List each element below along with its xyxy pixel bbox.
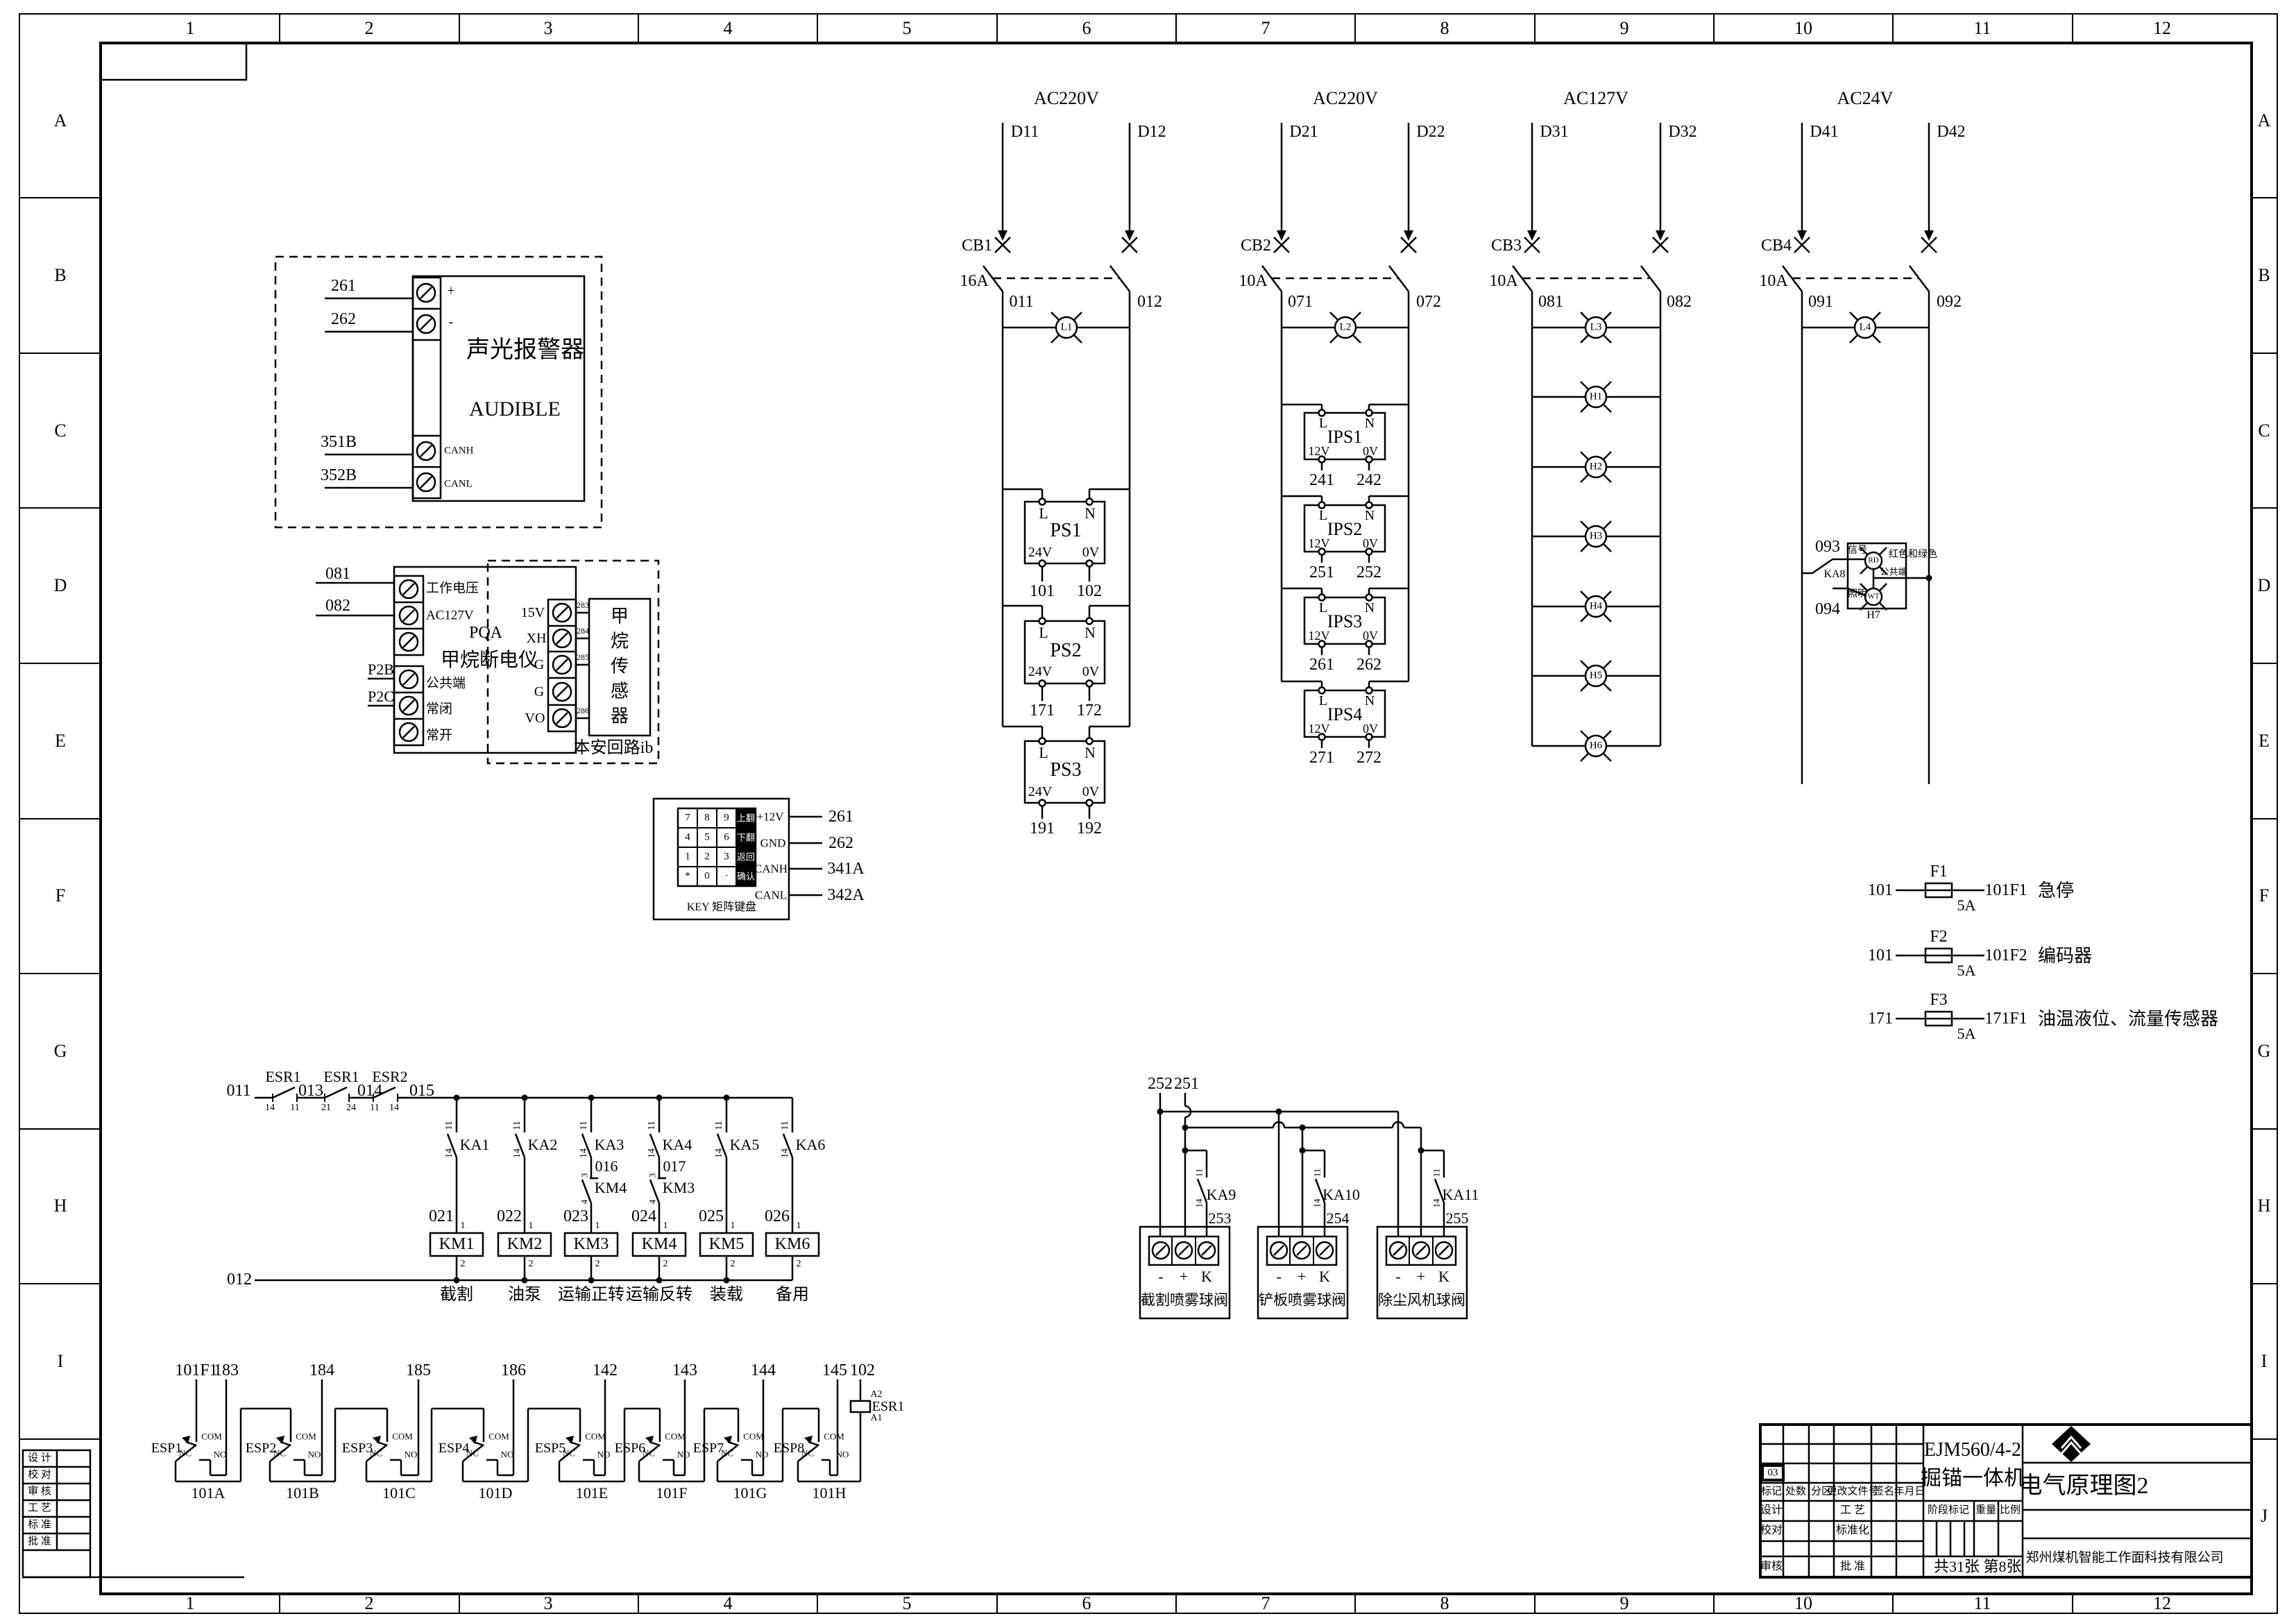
ka11-t2: 14 bbox=[1432, 1199, 1441, 1208]
wire-261c: 261 bbox=[1309, 656, 1334, 673]
km5-p2: 2 bbox=[731, 1259, 735, 1269]
wire-283: 283 bbox=[577, 601, 589, 609]
wire-262b: 262 bbox=[828, 835, 853, 851]
grid-col: 7 bbox=[1261, 1595, 1270, 1613]
esp7-no: NO bbox=[756, 1450, 769, 1459]
esp8-nc: NC bbox=[801, 1449, 814, 1458]
feed4-title: AC24V bbox=[1837, 90, 1894, 108]
esr1-a1: A1 bbox=[870, 1413, 882, 1423]
key-8[interactable]: 8 bbox=[704, 813, 710, 824]
lamp-H4: H4 bbox=[1590, 602, 1602, 612]
wire-253: 253 bbox=[1209, 1211, 1232, 1226]
contact-esr1a-t2: 11 bbox=[290, 1103, 299, 1113]
fuse2-desc: 编码器 bbox=[2038, 947, 2092, 965]
lamp-H1: H1 bbox=[1590, 392, 1602, 402]
contact-esr1b: ESR1 bbox=[323, 1069, 359, 1085]
wire-351B: 351B bbox=[321, 434, 357, 450]
grid-row: C bbox=[54, 422, 66, 440]
grid-col: 6 bbox=[1082, 19, 1091, 37]
v2-pos: + bbox=[1298, 1269, 1306, 1284]
coil-KM6: KM6 bbox=[775, 1236, 810, 1252]
switch-ESP8: ESP8 bbox=[774, 1441, 804, 1455]
key-pagedown[interactable]: 下翻 bbox=[737, 833, 755, 842]
audible-title-cn: 声光报警器 bbox=[466, 339, 584, 362]
grid-col: 3 bbox=[544, 1595, 553, 1613]
ka3-t2: 14 bbox=[579, 1148, 589, 1158]
node-024: 024 bbox=[631, 1208, 656, 1225]
esp3-no: NO bbox=[405, 1450, 418, 1459]
wire-172: 172 bbox=[1077, 702, 1102, 719]
ps1-24v: 24V bbox=[1028, 545, 1052, 559]
product-model: EJM560/4-2 bbox=[1924, 1441, 2021, 1460]
pin-15v: 15V bbox=[521, 606, 545, 620]
ips3-N: N bbox=[1365, 601, 1375, 615]
ps2-L: L bbox=[1039, 625, 1048, 640]
wire-144: 144 bbox=[751, 1362, 776, 1379]
grid-col: 10 bbox=[1794, 1595, 1812, 1613]
ka4-t2: 14 bbox=[647, 1148, 657, 1158]
wire-171: 171 bbox=[1030, 702, 1055, 719]
wire-D32: D32 bbox=[1668, 124, 1697, 140]
grid-col: 2 bbox=[365, 1595, 374, 1613]
ka1-t2: 14 bbox=[445, 1148, 454, 1158]
grid-col: 1 bbox=[186, 1595, 195, 1613]
km4-p1: 1 bbox=[663, 1221, 668, 1231]
contact-KA2: KA2 bbox=[528, 1137, 558, 1153]
grid-col: 2 bbox=[365, 19, 374, 37]
v2-neg: - bbox=[1276, 1269, 1281, 1284]
key-5[interactable]: 5 bbox=[704, 833, 710, 843]
ips1-12v: 12V bbox=[1309, 445, 1330, 457]
wire-192: 192 bbox=[1077, 820, 1102, 837]
pin-12v: +12V bbox=[757, 811, 784, 823]
wire-251b: 251 bbox=[1174, 1076, 1199, 1092]
breaker-CB4-rating: 10A bbox=[1759, 273, 1787, 289]
km4-i2: 4 bbox=[580, 1200, 589, 1205]
grid-row: A bbox=[2258, 112, 2271, 130]
grid-row: D bbox=[54, 577, 67, 595]
pin-vo: VO bbox=[525, 711, 545, 725]
ips1-name: IPS1 bbox=[1327, 428, 1363, 446]
contact-KA4: KA4 bbox=[663, 1137, 692, 1153]
node-017: 017 bbox=[663, 1159, 686, 1174]
grid-col: 12 bbox=[2153, 1595, 2171, 1613]
node-092: 092 bbox=[1937, 294, 1962, 310]
fuse2-rating: 5A bbox=[1957, 963, 1976, 978]
wire-251: 251 bbox=[1309, 564, 1334, 581]
ips4-L: L bbox=[1319, 694, 1327, 708]
contact-esr1a: ESR1 bbox=[265, 1069, 300, 1085]
fuse3-out: 171F1 bbox=[1984, 1010, 2027, 1027]
esp4-com: COM bbox=[488, 1432, 509, 1441]
ka3-t1: 11 bbox=[579, 1121, 589, 1130]
lamp-L2: L2 bbox=[1340, 323, 1352, 333]
tb-h-count: 处数 bbox=[1785, 1487, 1806, 1497]
terminal-canh: CANH bbox=[444, 446, 474, 457]
v1-k: K bbox=[1201, 1269, 1212, 1284]
wire-102: 102 bbox=[1077, 583, 1102, 600]
ka2-t1: 11 bbox=[513, 1121, 522, 1130]
pin-gnd: GND bbox=[760, 838, 786, 849]
bus-101G: 101G bbox=[733, 1486, 767, 1501]
h7-colors: 红色和绿色 bbox=[1889, 550, 1937, 560]
key-confirm[interactable]: 确认 bbox=[737, 872, 755, 881]
valve1-name: 截割喷雾球阀 bbox=[1141, 1293, 1228, 1308]
node-021: 021 bbox=[429, 1208, 454, 1225]
grid-col: 5 bbox=[903, 19, 912, 37]
terminal-plus: + bbox=[447, 284, 454, 298]
lamp-WT: WT bbox=[1867, 593, 1879, 601]
grid-col: 6 bbox=[1082, 1595, 1091, 1613]
ps2-name: PS2 bbox=[1050, 641, 1081, 661]
ps1-L: L bbox=[1039, 506, 1048, 521]
esp6-nc: NC bbox=[643, 1449, 655, 1458]
pin-xh: XH bbox=[527, 631, 547, 645]
wire-D11: D11 bbox=[1011, 124, 1039, 140]
node-011b: 011 bbox=[226, 1082, 250, 1099]
company-name: 郑州煤机智能工作面科技有限公司 bbox=[2025, 1552, 2223, 1565]
tb-process: 工 艺 bbox=[1840, 1505, 1865, 1516]
contact-KA11: KA11 bbox=[1443, 1187, 1479, 1203]
wire-272: 272 bbox=[1357, 749, 1381, 766]
grid-row: F bbox=[56, 887, 65, 905]
device-pqa: PQA bbox=[469, 624, 502, 641]
key-7[interactable]: 7 bbox=[685, 813, 690, 824]
breaker-CB3-rating: 10A bbox=[1489, 273, 1517, 289]
contact-esr2-t1: 11 bbox=[370, 1103, 379, 1113]
fuse3-name: F3 bbox=[1930, 992, 1947, 1008]
grid-col: 5 bbox=[903, 1595, 912, 1613]
sig-check: 校 对 bbox=[28, 1470, 51, 1481]
fuse3-rating: 5A bbox=[1957, 1026, 1976, 1042]
grid-row: C bbox=[2258, 422, 2270, 440]
grid-row: I bbox=[58, 1352, 64, 1370]
grid-row: G bbox=[2258, 1042, 2271, 1060]
wire-185: 185 bbox=[406, 1362, 431, 1379]
wire-342A: 342A bbox=[827, 887, 864, 903]
node-026: 026 bbox=[765, 1208, 790, 1225]
wire-271: 271 bbox=[1309, 749, 1334, 766]
contact-KA9: KA9 bbox=[1207, 1187, 1236, 1203]
fuse1-in: 101 bbox=[1868, 882, 1893, 899]
grid-col: 7 bbox=[1261, 19, 1270, 37]
esp4-nc: NC bbox=[466, 1449, 479, 1458]
ka10-t1: 11 bbox=[1313, 1169, 1322, 1178]
ips2-12v: 12V bbox=[1309, 537, 1330, 550]
wire-145: 145 bbox=[822, 1362, 847, 1379]
km3-p1: 1 bbox=[595, 1221, 600, 1231]
tb-h-sign: 签名 bbox=[1873, 1487, 1894, 1497]
wire-143: 143 bbox=[672, 1362, 697, 1379]
bus-101D: 101D bbox=[479, 1486, 513, 1501]
ka6-t1: 11 bbox=[781, 1121, 790, 1130]
tb-sheet: 第8张 bbox=[1983, 1559, 2021, 1574]
ka2-t2: 14 bbox=[513, 1148, 522, 1158]
lamp-RD: RD bbox=[1868, 557, 1878, 565]
km1-p2: 2 bbox=[461, 1259, 466, 1269]
node-091: 091 bbox=[1808, 294, 1833, 310]
coil-KM4: KM4 bbox=[642, 1236, 677, 1252]
v3-k: K bbox=[1438, 1269, 1449, 1284]
methane-sensor: 甲烷传感器 bbox=[609, 604, 631, 728]
fuse2-in: 101 bbox=[1868, 947, 1893, 964]
ladder-lines bbox=[255, 1087, 819, 1284]
ps3-0v: 0V bbox=[1082, 785, 1099, 799]
key-6[interactable]: 6 bbox=[724, 833, 729, 843]
tb-weight: 重量 bbox=[1975, 1506, 1996, 1516]
wire-D22: D22 bbox=[1416, 124, 1445, 140]
key-star[interactable]: * bbox=[685, 872, 690, 882]
coil-ESR1: ESR1 bbox=[872, 1400, 905, 1413]
esp5-com: COM bbox=[585, 1432, 606, 1441]
wire-D31: D31 bbox=[1540, 124, 1568, 140]
rev-marker: 03 bbox=[1768, 1468, 1778, 1479]
km1-p1: 1 bbox=[461, 1221, 466, 1231]
wire-D42: D42 bbox=[1937, 124, 1965, 140]
node-025: 025 bbox=[699, 1208, 724, 1225]
ips4-N: N bbox=[1365, 694, 1375, 708]
ps2-0v: 0V bbox=[1082, 665, 1099, 679]
grid-row: E bbox=[2259, 732, 2270, 750]
wire-D21: D21 bbox=[1289, 124, 1318, 140]
key-0[interactable]: 0 bbox=[704, 872, 710, 882]
interlock-KM3: KM3 bbox=[663, 1180, 695, 1196]
node-011: 011 bbox=[1009, 294, 1033, 310]
valve3-name: 除尘风机球阀 bbox=[1378, 1293, 1465, 1308]
breaker-CB2-rating: 10A bbox=[1239, 273, 1267, 289]
wire-255: 255 bbox=[1446, 1211, 1469, 1226]
terminal-voltage: 工作电压 bbox=[426, 582, 479, 595]
coil-KM3: KM3 bbox=[574, 1236, 609, 1252]
bus-101E: 101E bbox=[576, 1486, 608, 1501]
contact-KA3: KA3 bbox=[595, 1137, 624, 1153]
esp2-com: COM bbox=[296, 1432, 316, 1441]
node-094: 094 bbox=[1815, 601, 1840, 618]
esr1-a2: A2 bbox=[870, 1390, 882, 1400]
v1-pos: + bbox=[1180, 1269, 1188, 1284]
key-9[interactable]: 9 bbox=[724, 813, 729, 824]
pin-g2: G bbox=[534, 685, 544, 699]
drawing-title: 电气原理图2 bbox=[2019, 1475, 2149, 1498]
ips2-N: N bbox=[1365, 509, 1375, 522]
wire-261: 261 bbox=[331, 278, 356, 294]
fuse2-out: 101F2 bbox=[1984, 947, 2027, 964]
h7-signal: 信号 bbox=[1848, 546, 1867, 556]
contact-esr1a-t1: 14 bbox=[265, 1103, 275, 1113]
bus-101H: 101H bbox=[813, 1486, 847, 1501]
wire-252b: 252 bbox=[1148, 1076, 1173, 1092]
esp2-no: NO bbox=[308, 1450, 321, 1459]
esp2-nc: NC bbox=[273, 1449, 286, 1458]
tb-audit: 审核 bbox=[1760, 1561, 1783, 1572]
key-pageup[interactable]: 上翻 bbox=[737, 814, 755, 823]
feed4-lines bbox=[1783, 123, 1937, 784]
wire-101F1: 101F1 bbox=[175, 1362, 217, 1379]
coil-KM5: KM5 bbox=[709, 1236, 745, 1252]
wire-286: 286 bbox=[577, 706, 589, 715]
ips1-N: N bbox=[1365, 416, 1375, 430]
km3-i1: 3 bbox=[648, 1173, 657, 1178]
switch-ESP2: ESP2 bbox=[246, 1441, 276, 1455]
wire-262: 262 bbox=[331, 311, 356, 328]
km3-p2: 2 bbox=[595, 1259, 600, 1269]
node-016: 016 bbox=[595, 1159, 618, 1174]
contact-KA6: KA6 bbox=[796, 1137, 826, 1153]
wire-p2b: P2B bbox=[368, 662, 394, 677]
wire-183: 183 bbox=[214, 1362, 239, 1379]
ka10-t2: 14 bbox=[1313, 1199, 1322, 1208]
breaker-CB1: CB1 bbox=[962, 237, 992, 254]
switch-ESP1: ESP1 bbox=[151, 1441, 182, 1455]
esp3-com: COM bbox=[392, 1432, 413, 1441]
grid-row: H bbox=[2258, 1197, 2271, 1215]
contact-esr1b-t1: 21 bbox=[321, 1103, 331, 1113]
func-load: 装载 bbox=[710, 1286, 743, 1303]
node-093: 093 bbox=[1815, 538, 1840, 555]
grid-col: 4 bbox=[724, 1595, 733, 1613]
coil-KM1: KM1 bbox=[439, 1236, 475, 1252]
grid-col: 9 bbox=[1620, 19, 1629, 37]
tb-standard: 标准化 bbox=[1836, 1525, 1869, 1536]
schematic-sheet: 1 2 3 4 5 6 7 8 9 10 11 12 1 2 3 4 5 6 7… bbox=[0, 0, 2296, 1623]
lamp-H6: H6 bbox=[1590, 741, 1602, 751]
lamp-L1: L1 bbox=[1061, 323, 1073, 333]
tb-sheets: 共31张 bbox=[1934, 1559, 1980, 1574]
key-dot[interactable]: · bbox=[725, 872, 729, 882]
bus-101F: 101F bbox=[656, 1486, 687, 1501]
wire-241: 241 bbox=[1309, 472, 1334, 488]
key-back[interactable]: 返回 bbox=[737, 853, 755, 862]
grid-row: D bbox=[2258, 577, 2271, 595]
pin-g1: G bbox=[534, 658, 544, 672]
key-2[interactable]: 2 bbox=[704, 852, 710, 863]
ps3-name: PS3 bbox=[1050, 760, 1081, 780]
km5-p1: 1 bbox=[731, 1221, 735, 1231]
ka1-t1: 11 bbox=[445, 1121, 454, 1130]
wire-p2c: P2C bbox=[368, 689, 394, 704]
wire-102b: 102 bbox=[850, 1362, 875, 1379]
grid-row: E bbox=[55, 732, 66, 750]
terminal-common: 公共端 bbox=[426, 677, 466, 690]
grid-col: 8 bbox=[1440, 1595, 1449, 1613]
esp4-no: NO bbox=[501, 1450, 514, 1459]
bus-101C: 101C bbox=[382, 1486, 416, 1501]
esp8-no: NO bbox=[836, 1450, 849, 1459]
schematic-linework bbox=[0, 0, 2296, 1623]
company-logo bbox=[2052, 1426, 2091, 1462]
wire-352B: 352B bbox=[321, 467, 357, 484]
ips3-name: IPS3 bbox=[1327, 613, 1363, 631]
breaker-CB2: CB2 bbox=[1241, 237, 1271, 254]
contact-KA10: KA10 bbox=[1323, 1187, 1360, 1203]
frame-lines bbox=[19, 14, 2277, 1613]
node-015: 015 bbox=[409, 1082, 434, 1099]
func-pump: 油泵 bbox=[508, 1286, 541, 1303]
fuse1-rating: 5A bbox=[1957, 898, 1976, 913]
ka4-t1: 11 bbox=[647, 1121, 657, 1130]
tb-h-docno: 更改文件号 bbox=[1826, 1487, 1878, 1497]
contact-esr2: ESR2 bbox=[372, 1069, 407, 1085]
ka5-t1: 11 bbox=[715, 1121, 724, 1130]
contact-KA1: KA1 bbox=[460, 1137, 490, 1153]
grid-col: 11 bbox=[1973, 19, 1991, 37]
grid-col: 12 bbox=[2153, 19, 2171, 37]
esp6-no: NO bbox=[677, 1450, 690, 1459]
wire-254: 254 bbox=[1327, 1211, 1350, 1226]
switch-ESP6: ESP6 bbox=[615, 1441, 645, 1455]
sig-process: 工 艺 bbox=[28, 1504, 51, 1514]
contact-esr2-t2: 14 bbox=[389, 1103, 399, 1113]
ips1-0v: 0V bbox=[1363, 445, 1378, 457]
sig-audit: 审 核 bbox=[28, 1487, 51, 1497]
switch-ESP5: ESP5 bbox=[535, 1441, 566, 1455]
ps1-0v: 0V bbox=[1082, 545, 1099, 559]
grid-row: F bbox=[2259, 887, 2269, 905]
bus-101B: 101B bbox=[286, 1486, 319, 1501]
esp1-no: NO bbox=[214, 1450, 227, 1459]
breaker-CB1-rating: 16A bbox=[960, 273, 988, 289]
breaker-CB3: CB3 bbox=[1491, 237, 1522, 254]
key-1[interactable]: 1 bbox=[685, 852, 690, 863]
ps1-N: N bbox=[1085, 506, 1096, 521]
wire-186: 186 bbox=[501, 1362, 526, 1379]
ps3-24v: 24V bbox=[1028, 785, 1052, 799]
wire-261b: 261 bbox=[828, 808, 853, 825]
key-4[interactable]: 4 bbox=[685, 833, 690, 843]
pin-canl: CANL bbox=[755, 890, 787, 901]
feed1-lines bbox=[983, 123, 1137, 819]
ips2-L: L bbox=[1319, 509, 1327, 522]
grid-row: J bbox=[2261, 1507, 2268, 1525]
km4-p2: 2 bbox=[663, 1259, 668, 1269]
wire-285: 285 bbox=[577, 653, 589, 661]
tb-design: 设计 bbox=[1760, 1505, 1783, 1516]
h7-name: H7 bbox=[1866, 610, 1880, 621]
breaker-CB4: CB4 bbox=[1761, 237, 1792, 254]
grid-row: A bbox=[54, 112, 67, 130]
ips1-L: L bbox=[1319, 416, 1327, 430]
node-012: 012 bbox=[1137, 294, 1162, 310]
contact-KA8: KA8 bbox=[1823, 569, 1845, 580]
wire-252: 252 bbox=[1357, 564, 1381, 581]
contact-KA5: KA5 bbox=[730, 1137, 760, 1153]
fuse2-name: F2 bbox=[1930, 928, 1947, 945]
ips3-L: L bbox=[1319, 601, 1327, 615]
func-fwd: 运输正转 bbox=[558, 1286, 624, 1303]
key-3[interactable]: 3 bbox=[724, 852, 729, 863]
h7-light: 照明 bbox=[1848, 590, 1867, 600]
wire-341A: 341A bbox=[827, 860, 864, 877]
sig-approve: 批 准 bbox=[28, 1537, 51, 1547]
feed3-title: AC127V bbox=[1563, 90, 1629, 108]
km2-p1: 1 bbox=[529, 1221, 534, 1231]
esp-lines bbox=[176, 1379, 870, 1481]
ips3-12v: 12V bbox=[1309, 629, 1330, 642]
terminal-no: 常开 bbox=[426, 729, 452, 742]
km6-p1: 1 bbox=[797, 1221, 801, 1231]
fuse3-in: 171 bbox=[1868, 1010, 1893, 1027]
node-072: 072 bbox=[1416, 294, 1441, 310]
switch-ESP4: ESP4 bbox=[439, 1441, 469, 1455]
product-name: 掘锚一体机 bbox=[1921, 1468, 2025, 1489]
lamp-H3: H3 bbox=[1590, 532, 1602, 542]
func-rev: 运输反转 bbox=[626, 1286, 692, 1303]
ps2-24v: 24V bbox=[1028, 665, 1052, 679]
switch-ESP7: ESP7 bbox=[693, 1441, 724, 1455]
ips4-name: IPS4 bbox=[1327, 706, 1363, 724]
switch-ESP3: ESP3 bbox=[342, 1441, 373, 1455]
v3-pos: + bbox=[1417, 1269, 1425, 1284]
